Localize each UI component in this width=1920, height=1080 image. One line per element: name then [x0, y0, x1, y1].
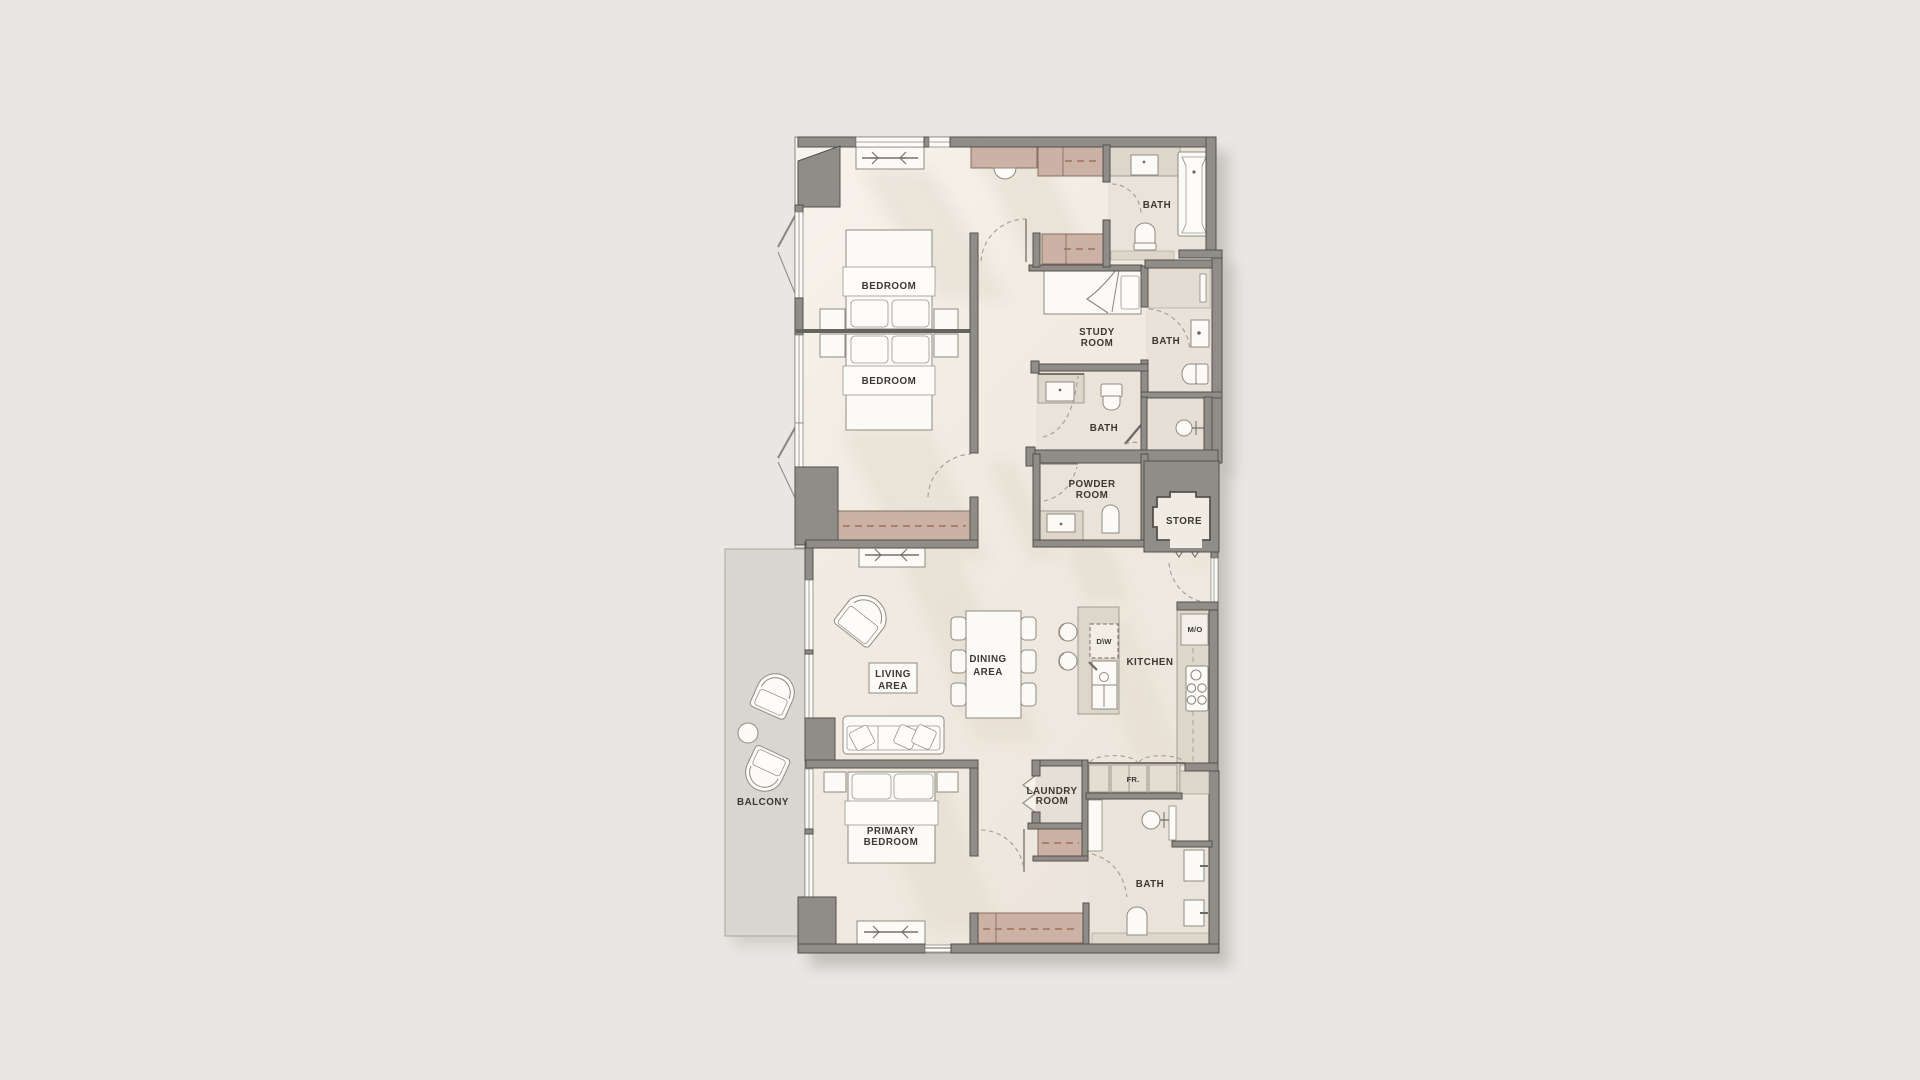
svg-text:FR.: FR.	[1127, 775, 1140, 784]
svg-text:BATH: BATH	[1136, 879, 1164, 890]
svg-text:POWDER: POWDER	[1068, 479, 1115, 490]
svg-text:BALCONY: BALCONY	[737, 797, 789, 808]
svg-text:ROOM: ROOM	[1076, 490, 1108, 501]
svg-text:LIVING: LIVING	[875, 669, 911, 680]
svg-text:AREA: AREA	[973, 667, 1003, 678]
svg-text:ROOM: ROOM	[1081, 338, 1113, 349]
svg-text:BATH: BATH	[1090, 423, 1118, 434]
svg-text:BATH: BATH	[1152, 336, 1180, 347]
svg-text:PRIMARY: PRIMARY	[867, 826, 915, 837]
svg-text:STORE: STORE	[1166, 516, 1202, 527]
svg-text:KITCHEN: KITCHEN	[1126, 657, 1173, 668]
svg-text:BEDROOM: BEDROOM	[862, 281, 917, 292]
svg-text:BEDROOM: BEDROOM	[864, 837, 919, 848]
svg-text:ROOM: ROOM	[1036, 796, 1068, 807]
svg-text:D\W: D\W	[1096, 637, 1112, 646]
svg-text:M/O: M/O	[1188, 625, 1203, 634]
svg-text:DINING: DINING	[969, 654, 1006, 665]
svg-text:BEDROOM: BEDROOM	[862, 376, 917, 387]
svg-text:BATH: BATH	[1143, 200, 1171, 211]
svg-text:AREA: AREA	[878, 681, 908, 692]
svg-text:STUDY: STUDY	[1079, 327, 1115, 338]
